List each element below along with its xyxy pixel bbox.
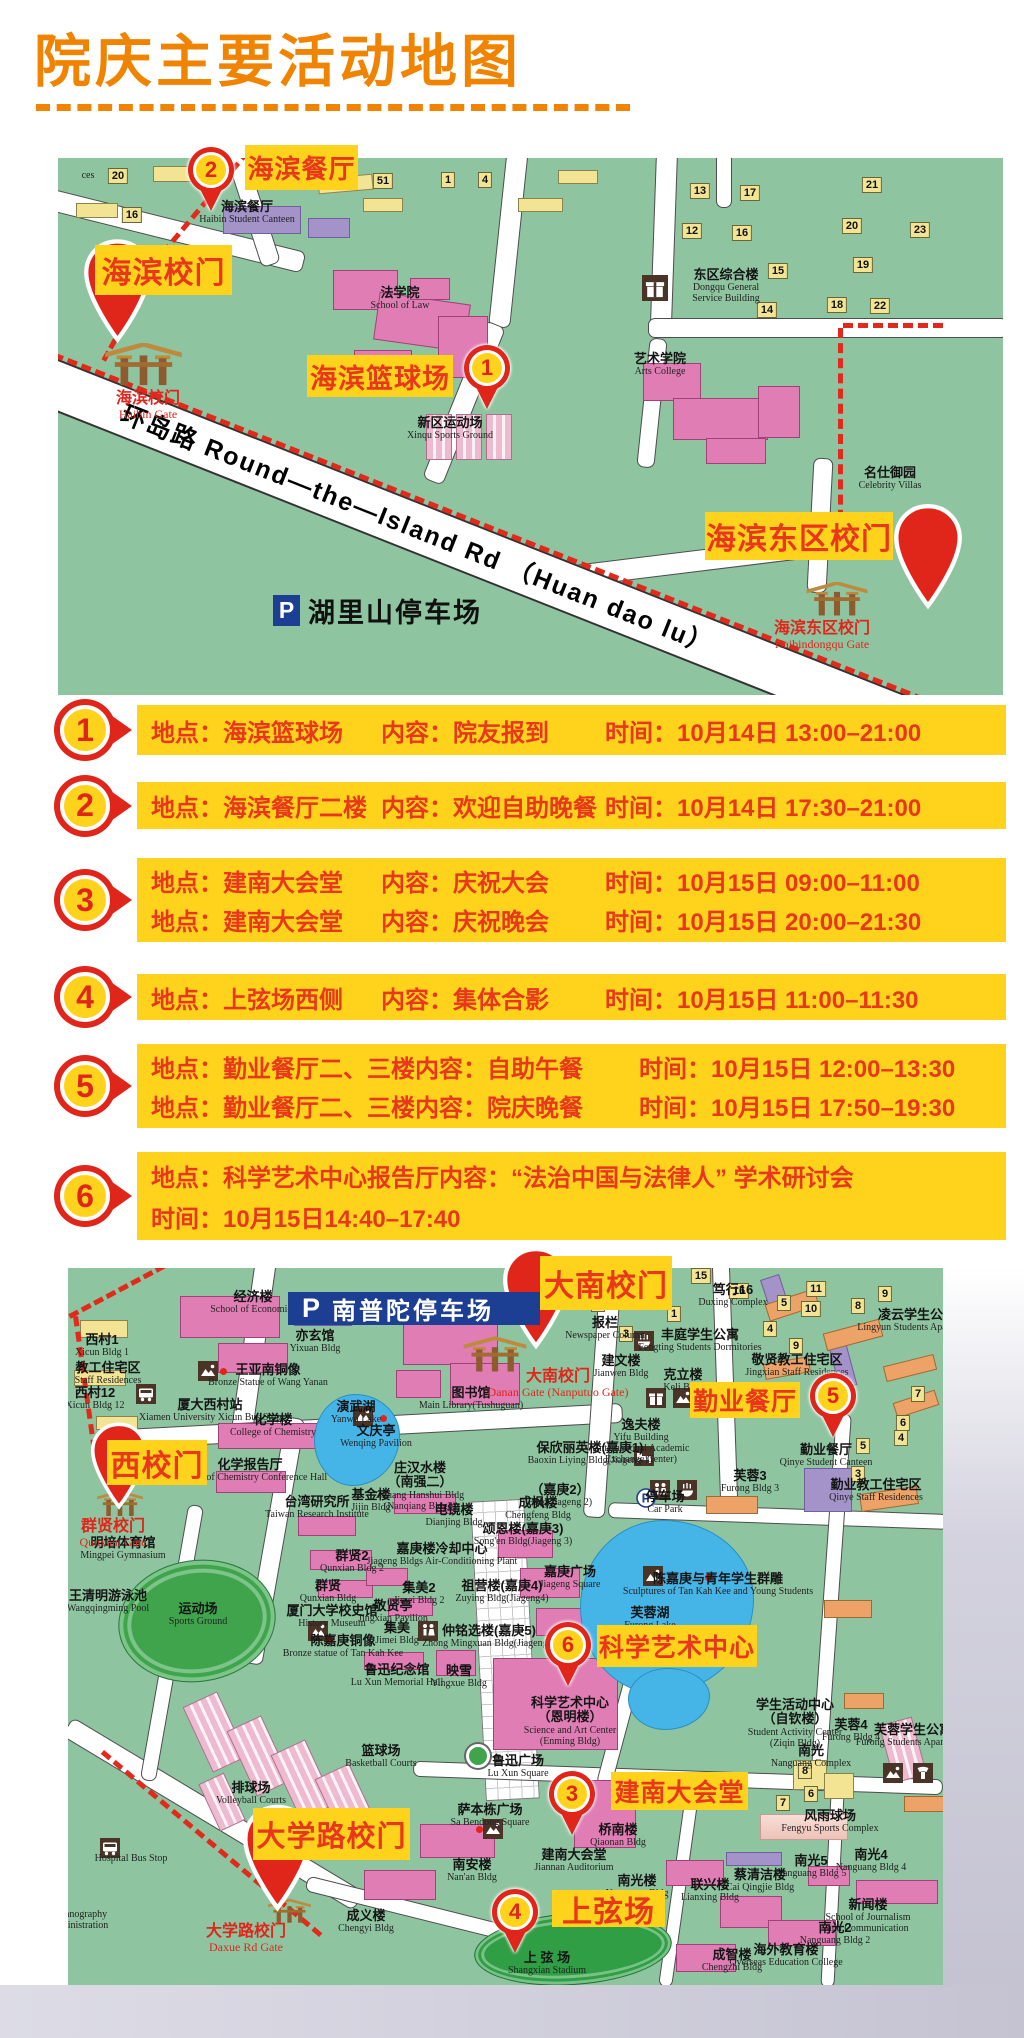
gate-name-en: Qunxian Gate xyxy=(80,1536,147,1549)
map-label: ces xyxy=(82,170,95,181)
building-number: 5 xyxy=(777,1295,791,1311)
map-label-zh: 上 弦 场 xyxy=(508,1951,586,1965)
marker-number: 5 xyxy=(60,1061,110,1111)
gate-name-zh: 海滨校门 xyxy=(116,390,180,408)
building-number: 19 xyxy=(853,257,873,273)
map-tag: 上弦场 xyxy=(552,1890,665,1927)
marker-tail xyxy=(820,1411,846,1437)
map-label: 桥南楼Qiaonan Bldg xyxy=(590,1823,646,1848)
marker-tail xyxy=(502,1927,528,1953)
map-label-en: Lu Xun Memorial Hall xyxy=(351,1677,443,1688)
event-content: 内容：院友报到 xyxy=(381,713,605,748)
map-tag: 科学艺术中心 xyxy=(597,1625,757,1667)
building-number: 10 xyxy=(801,1301,821,1317)
map-label: 艺术学院Arts College xyxy=(634,352,686,377)
event-place: 地点：科学艺术中心报告厅 xyxy=(151,1158,439,1193)
map-label-zh: 芙蓉3 xyxy=(721,1469,779,1483)
map-label-zh: 庄汉水楼 xyxy=(376,1461,464,1475)
map-marker-6: 6 xyxy=(545,1622,591,1686)
parking-label: P湖里山停车场 xyxy=(273,591,482,630)
map-label: 南光4Nanguang Bldg 4 xyxy=(836,1848,907,1873)
map-label-en: Qunxian Bldg 2 xyxy=(320,1563,384,1574)
gate-name-zh: 大学路校门 xyxy=(206,1923,286,1941)
parking-name: 湖里山停车场 xyxy=(308,591,482,630)
map-label-zh: 海外教育楼 xyxy=(729,1943,842,1957)
map-label-zh: 芙蓉湖 xyxy=(624,1606,675,1620)
map-label: 仲铭选楼(嘉庚5)Zhong Mingxuan Bldg(Jiageng5) xyxy=(422,1624,556,1649)
road xyxy=(650,158,679,338)
map-label: 运动场Sports Ground xyxy=(169,1602,228,1627)
building-number: 16 xyxy=(732,225,752,241)
map-label-en: Car Park xyxy=(645,1504,684,1515)
building-number: 14 xyxy=(757,302,777,318)
page-margin-bottom xyxy=(0,1985,1024,2038)
map-label-en: Yixuan Bldg xyxy=(290,1343,341,1354)
map-label-en: School of Economics xyxy=(210,1304,296,1315)
map-label-en: Shangxian Stadium xyxy=(508,1965,586,1976)
event-content: 内容：欢迎自助晚餐 xyxy=(381,788,605,823)
marker-ring: 2 xyxy=(54,775,116,837)
map-label: 科学艺术中心（恩明楼）Science and Art Center(Enming… xyxy=(524,1696,616,1747)
map-label-en: ces xyxy=(82,170,95,181)
map-label-en: Zhong Mingxuan Bldg(Jiageng5) xyxy=(422,1638,556,1649)
event-time: 时间：10月15日 11:00–11:30 xyxy=(605,980,919,1015)
map-label-en: Basketball Courts xyxy=(345,1758,416,1769)
map-label: 笃行16Duxing Complex xyxy=(698,1283,767,1308)
event-time: 时间：10月15日14:40–17:40 xyxy=(151,1199,461,1234)
building-number: 1 xyxy=(441,172,455,188)
gate-name-label: 大学路校门Daxue Rd Gate xyxy=(206,1923,286,1954)
marker-ring: 6 xyxy=(54,1165,116,1227)
building-number: 4 xyxy=(763,1321,777,1337)
map-label: 群贤2Qunxian Bldg 2 xyxy=(320,1549,384,1574)
map-label-zh: 鲁迅纪念馆 xyxy=(351,1663,443,1677)
building-orange xyxy=(904,1796,943,1812)
marker-number: 2 xyxy=(193,152,229,188)
gate-name-zh: 群贤校门 xyxy=(80,1518,147,1536)
event-bar-2: 地点：海滨餐厅二楼内容：欢迎自助晚餐时间：10月14日 17:30–21:00 xyxy=(137,782,1006,829)
map-label-zh: 勤业教工住宅区 xyxy=(829,1478,923,1492)
map-label-en: Bronze Statue of Wang Yanan xyxy=(208,1377,328,1388)
map-label-zh: 学生活动中心 xyxy=(748,1698,842,1712)
map-label: 亦玄馆Yixuan Bldg xyxy=(290,1329,341,1354)
event-row: 地点：勤业餐厅二、三楼内容：院庆晚餐时间：10月15日 17:50–19:30 xyxy=(137,1088,1006,1123)
map-label-zh: 萨本栋广场 xyxy=(451,1803,530,1817)
gate-name-en: Danan Gate (Nanputuo Gate) xyxy=(488,1386,629,1399)
marker-number: 4 xyxy=(497,1894,533,1930)
map-tag: 建南大会堂 xyxy=(611,1772,748,1810)
marker-ring: 3 xyxy=(54,869,116,931)
building-yellow xyxy=(518,198,563,212)
marker-ring: 6 xyxy=(545,1622,591,1668)
building-number: 17 xyxy=(740,185,760,201)
event-row: 地点：建南大会堂内容：庆祝晚会时间：10月15日 20:00–21:30 xyxy=(137,902,1006,937)
gift-icon xyxy=(642,275,668,301)
map-label-zh: 报栏 xyxy=(565,1316,645,1330)
event-marker-1: 1 xyxy=(54,699,186,761)
map-label: 法学院School of Law xyxy=(371,286,430,311)
map-label-zh: 仲铭选楼(嘉庚5) xyxy=(422,1624,556,1638)
map-label-zh: 嘉庚广场 xyxy=(540,1565,601,1579)
map-label-en: Oceanography xyxy=(68,1909,108,1920)
map-label-en: Fengting Students Dormitories xyxy=(638,1342,761,1353)
parking-p-icon: P xyxy=(273,595,300,626)
event-row: 地点：海滨餐厅二楼内容：欢迎自助晚餐时间：10月14日 17:30–21:00 xyxy=(137,788,1006,823)
building-orange xyxy=(844,1693,884,1709)
event-marker-4: 4 xyxy=(54,966,186,1028)
event-bar-4: 地点：上弦场西侧内容：集体合影时间：10月15日 11:00–11:30 xyxy=(137,974,1006,1020)
marker-number: 3 xyxy=(60,875,110,925)
event-bar-3: 地点：建南大会堂内容：庆祝大会时间：10月15日 09:00–11:00地点：建… xyxy=(137,858,1006,942)
building-number: 18 xyxy=(827,297,847,313)
map-label-en: Dongqu General xyxy=(692,282,760,293)
building-orange xyxy=(824,1600,872,1618)
event-content: 内容：集体合影 xyxy=(381,980,605,1015)
map-label-en: Nan'an Bldg xyxy=(447,1872,497,1883)
map-label: 海外教育楼Overseas Education College xyxy=(729,1943,842,1968)
marker-ring: 3 xyxy=(549,1771,595,1817)
map-label-en: Duxing Complex xyxy=(698,1297,767,1308)
building-number: 6 xyxy=(896,1415,910,1431)
map-label: 西村1Xicun Bldg 1 xyxy=(75,1333,129,1358)
map-label-zh: 电镜楼 xyxy=(426,1503,483,1517)
map-label: 鲁迅广场Lu Xun Square xyxy=(487,1754,548,1779)
map-label: 成义楼Chengyi Bldg xyxy=(338,1909,394,1934)
map-label: 成枫楼Chengfeng Bldg xyxy=(505,1496,571,1521)
map-label: 西村12Xicun Bldg 12 xyxy=(68,1386,124,1411)
event-time: 时间：10月15日 20:00–21:30 xyxy=(605,902,921,937)
map-label-zh: 鲁迅广场 xyxy=(487,1754,548,1768)
gate-name-en: Haibin Gate xyxy=(116,408,180,421)
map-label: 东区综合楼Dongqu GeneralService Building xyxy=(692,268,760,304)
building-number: 23 xyxy=(910,222,930,238)
map-label: 报栏Newspaper Column xyxy=(565,1316,645,1341)
map-label: 芙蓉3Furong Bldg 3 xyxy=(721,1469,779,1494)
map-label-en: Main Library(Tushuguan) xyxy=(419,1400,523,1411)
map-label: 基金楼Jijin Bldg xyxy=(351,1488,390,1513)
page-margin-right xyxy=(943,1268,1024,2038)
map-label-en: Hospital Bus Stop xyxy=(95,1853,168,1864)
map-label: 嘉庚广场Jiageng Square xyxy=(540,1565,601,1590)
map-tag: 海滨餐厅 xyxy=(245,145,358,190)
road xyxy=(648,318,1003,338)
event-marker-6: 6 xyxy=(54,1165,186,1227)
gate-name-en: Haibindongqu Gate xyxy=(774,638,870,651)
marker-tail xyxy=(559,1809,585,1835)
map-label-en: Administration xyxy=(68,1920,108,1931)
map-label-zh: 丰庭学生公寓 xyxy=(638,1328,761,1342)
map-label-zh: 经济楼 xyxy=(210,1290,296,1304)
map-label-zh: 映雪 xyxy=(431,1664,487,1678)
map-label: 陈嘉庚与青年学生群雕Sculptures of Tan Kah Kee and … xyxy=(623,1572,813,1597)
map-label: 演武湖Yanwu Lake xyxy=(331,1400,381,1425)
map-label-en: Zuying Bldg(Jiageng4) xyxy=(455,1593,548,1604)
event-bar-1: 地点：海滨篮球场内容：院友报到时间：10月14日 13:00–21:00 xyxy=(137,705,1006,755)
building-number: 12 xyxy=(682,223,702,239)
marker-ring: 5 xyxy=(54,1055,116,1117)
building-purple xyxy=(308,218,350,238)
map-label-zh: 勤业餐厅 xyxy=(780,1443,873,1457)
map-label-en: Wenqing Pavilion xyxy=(340,1438,412,1449)
event-row: 地点：上弦场西侧内容：集体合影时间：10月15日 11:00–11:30 xyxy=(137,980,1006,1015)
marker-ring: 4 xyxy=(54,966,116,1028)
map-label-en: Haibin Student Canteen xyxy=(199,214,295,225)
map-label: 祖营楼(嘉庚4)Zuying Bldg(Jiageng4) xyxy=(455,1579,548,1604)
event-row: 地点：科学艺术中心报告厅内容：“法治中国与法律人” 学术研讨会 xyxy=(137,1158,1006,1193)
building-number: 20 xyxy=(108,168,128,184)
map-label-en: (Enming Bldg) xyxy=(524,1736,616,1747)
marker-number: 5 xyxy=(815,1378,851,1414)
marker-number: 3 xyxy=(554,1776,590,1812)
map-label: 芙蓉学生公寓Furong Students Apartments xyxy=(856,1723,943,1748)
anniversary-map-poster: 院庆主要活动地图 环岛路 Round—the—Island Rd （Huan d… xyxy=(0,0,1024,2038)
map-label-en: College of Chemistry xyxy=(230,1427,316,1438)
marker-number: 4 xyxy=(60,972,110,1022)
map-label-en: Furong Bldg 3 xyxy=(721,1483,779,1494)
map-label-en: Arts College xyxy=(634,366,686,377)
map-label-zh: （恩明楼） xyxy=(524,1710,616,1724)
event-row: 时间：10月15日14:40–17:40 xyxy=(137,1199,1006,1234)
map-label-zh: 演武湖 xyxy=(331,1400,381,1414)
building-yellow xyxy=(824,1773,854,1799)
map-label-zh: 集美2 xyxy=(393,1581,444,1595)
map-label-en: School of Law xyxy=(371,300,430,311)
map-label: 风雨球场Fengyu Sports Complex xyxy=(781,1809,878,1834)
phone-icon xyxy=(913,1763,933,1783)
event-time: 时间：10月14日 17:30–21:00 xyxy=(605,788,921,823)
map-label-en: Jimei Bldg 2 xyxy=(393,1595,444,1606)
title-underline xyxy=(36,104,630,111)
map-label-en: Overseas Education College xyxy=(729,1957,842,1968)
map-label-en: Yingxue Bldg xyxy=(431,1678,487,1689)
map-label-zh: 化学楼 xyxy=(230,1413,316,1427)
building-yellow xyxy=(558,170,598,184)
map-marker-2: 2 xyxy=(188,147,234,211)
marker-ring: 1 xyxy=(464,345,510,391)
event-time: 时间：10月14日 13:00–21:00 xyxy=(605,713,921,748)
gate-name-zh: 大南校门 xyxy=(488,1368,629,1386)
map-label-zh: 成义楼 xyxy=(338,1909,394,1923)
map-label-zh: 西村12 xyxy=(68,1386,124,1400)
event-time: 时间：10月15日 09:00–11:00 xyxy=(605,863,920,898)
map-label-zh: 排球场 xyxy=(216,1781,286,1795)
building-pink xyxy=(673,398,768,440)
map-marker-5: 5 xyxy=(810,1373,856,1437)
map-label-en: Service Building xyxy=(692,293,760,304)
map-tag: 勤业餐厅 xyxy=(690,1382,800,1418)
boundary-dashed-line xyxy=(68,1268,166,1319)
event-time: 时间：10月15日 12:00–13:30 xyxy=(639,1049,955,1084)
map-label: 逸夫楼Yifu Building(International AcademicE… xyxy=(593,1418,690,1465)
parking-banner: P南普陀停车场 xyxy=(288,1292,540,1325)
map-label-en: Furong Students Apartments xyxy=(856,1737,943,1748)
map-label: 王亚南铜像Bronze Statue of Wang Yanan xyxy=(208,1363,328,1388)
marker-ring: 2 xyxy=(188,147,234,193)
map-label: OceanographyAdministration xyxy=(68,1909,108,1931)
map-label-zh: 陈嘉庚与青年学生群雕 xyxy=(623,1572,813,1586)
marker-tail xyxy=(474,383,500,409)
marker-ring: 4 xyxy=(492,1889,538,1935)
map-label-zh: 科学艺术中心 xyxy=(524,1696,616,1710)
marker-number: 6 xyxy=(60,1171,110,1221)
map-label-zh: 颂恩楼(嘉庚3) xyxy=(474,1522,572,1536)
map-label-en: Exchange Center) xyxy=(593,1454,690,1465)
building-orange xyxy=(883,1354,937,1382)
map-marker-3: 3 xyxy=(549,1771,595,1835)
gate-pin xyxy=(893,493,963,620)
building-number: 15 xyxy=(768,263,788,279)
map-label-zh: 教工住宅区 xyxy=(75,1361,142,1375)
map-marker-1: 1 xyxy=(464,345,510,409)
map-label: 凌云学生公寓Lingyun Students Apartments xyxy=(857,1308,943,1333)
event-place: 地点：勤业餐厅二、三楼 xyxy=(151,1088,415,1123)
map-label: 萨本栋广场Sa Bendong Square xyxy=(451,1803,530,1828)
map-label-zh: 基金楼 xyxy=(351,1488,390,1502)
map-label: 王清明游泳池Wangqingming Pool xyxy=(68,1589,149,1614)
map-label-en: Nanguang Bldg 4 xyxy=(836,1862,907,1873)
gate-icon xyxy=(801,582,873,617)
map-label-zh: 桥南楼 xyxy=(590,1823,646,1837)
page-title: 院庆主要活动地图 xyxy=(34,16,522,98)
marker-tail xyxy=(555,1660,581,1686)
map-label-en: Nanguang Complex xyxy=(771,1758,851,1769)
gate-name-en: Daxue Rd Gate xyxy=(206,1941,286,1954)
marker-ring: 5 xyxy=(810,1373,856,1419)
map-label-en: Fengyu Sports Complex xyxy=(781,1823,878,1834)
map-label-en: Yifu Building xyxy=(593,1432,690,1443)
map-label-zh: 新闻楼 xyxy=(826,1898,911,1912)
map-label: 名仕御园Celebrity Villas xyxy=(859,466,922,491)
event-row: 地点：海滨篮球场内容：院友报到时间：10月14日 13:00–21:00 xyxy=(137,713,1006,748)
map-label-zh: 亦玄馆 xyxy=(290,1329,341,1343)
building-purple xyxy=(726,1852,782,1866)
map-label-en: Science and Art Center xyxy=(524,1725,616,1736)
map-label-zh: 运动场 xyxy=(169,1602,228,1616)
map-label-en: Xinqu Sports Ground xyxy=(407,430,493,441)
road xyxy=(488,158,530,329)
building-number: 11 xyxy=(806,1281,826,1297)
map-label-zh: 嘉庚楼冷却中心 xyxy=(367,1542,518,1556)
map-label-en: Celebrity Villas xyxy=(859,480,922,491)
map-label-en: Jijin Bldg xyxy=(351,1502,390,1513)
event-content: 内容：庆祝晚会 xyxy=(381,902,605,937)
roundabout xyxy=(466,1744,490,1768)
map-label-zh: 名仕御园 xyxy=(859,466,922,480)
building-number: 4 xyxy=(894,1430,908,1446)
map-label-zh: 群贤2 xyxy=(320,1549,384,1563)
marker-number: 1 xyxy=(469,350,505,386)
building-number: 21 xyxy=(862,177,882,193)
road xyxy=(716,158,732,208)
map-label-en: Mingpei Gymnasium xyxy=(80,1550,165,1561)
map-label: 上 弦 场Shangxian Stadium xyxy=(508,1951,586,1976)
map-label: 陈嘉庚铜像Bronze statue of Tan Kah Kee xyxy=(283,1634,403,1659)
event-bar-5: 地点：勤业餐厅二、三楼内容：自助午餐时间：10月15日 12:00–13:30地… xyxy=(137,1044,1006,1128)
map-label-zh: 芙蓉学生公寓 xyxy=(856,1723,943,1737)
building-pink xyxy=(758,386,800,438)
map-label-en: Xicun Bldg 12 xyxy=(68,1400,124,1411)
marker-tail xyxy=(198,185,224,211)
map-label-zh: 东区综合楼 xyxy=(692,268,760,282)
map-label-zh: 祖营楼(嘉庚4) xyxy=(455,1579,548,1593)
parking-p-icon: P xyxy=(302,1293,320,1324)
map-label-zh: 王亚南铜像 xyxy=(208,1363,328,1377)
map-label-en: Lu Xun Square xyxy=(487,1768,548,1779)
map-label-zh: 群贤 xyxy=(300,1579,356,1593)
building-number: 7 xyxy=(911,1386,925,1402)
building-number: 15 xyxy=(691,1268,711,1284)
map-label-zh: 成枫楼 xyxy=(505,1496,571,1510)
map-label: 集美2Jimei Bldg 2 xyxy=(393,1581,444,1606)
photo-icon xyxy=(883,1763,903,1783)
map-label-en: Jiageng Square xyxy=(540,1579,601,1590)
lake xyxy=(628,1668,710,1730)
building-yellow xyxy=(76,203,118,218)
map-label: 鲁迅纪念馆Lu Xun Memorial Hall xyxy=(351,1663,443,1688)
map-label-zh: 风雨球场 xyxy=(781,1809,878,1823)
gate-name-label: 海滨东区校门Haibindongqu Gate xyxy=(774,620,870,651)
building-number: 22 xyxy=(870,298,890,314)
map-tag: 海滨东区校门 xyxy=(705,512,893,560)
map-label-en: Xicun Bldg 1 xyxy=(75,1347,129,1358)
building-number: 9 xyxy=(878,1286,892,1302)
map-label-zh: 西村1 xyxy=(75,1333,129,1347)
map-label-en: Chengyi Bldg xyxy=(338,1923,394,1934)
map-label-en: Lianxing Bldg xyxy=(681,1892,739,1903)
map-label-en: Sculptures of Tan Kah Kee and Young Stud… xyxy=(623,1586,813,1597)
map-label: 群贤Qunxian Bldg xyxy=(300,1579,356,1604)
building-pink xyxy=(364,1870,436,1900)
building-yellow xyxy=(363,198,403,212)
map-label-zh: 笃行16 xyxy=(698,1283,767,1297)
map-label: 嘉庚楼冷却中心Jiageng Bldgs Air-Conditioning Pl… xyxy=(367,1542,518,1567)
event-row: 地点：建南大会堂内容：庆祝大会时间：10月15日 09:00–11:00 xyxy=(137,863,1006,898)
parking-name: 南普陀停车场 xyxy=(332,1291,494,1326)
event-marker-2: 2 xyxy=(54,775,186,837)
building-number: 13 xyxy=(690,183,710,199)
map-tag: 海滨篮球场 xyxy=(307,355,453,397)
map-label: 经济楼School of Economics xyxy=(210,1290,296,1315)
map-label-zh: 法学院 xyxy=(371,286,430,300)
map-label-zh: 陈嘉庚铜像 xyxy=(283,1634,403,1648)
map-label-zh: 南安楼 xyxy=(447,1858,497,1872)
map-label-en: Sports Ground xyxy=(169,1616,228,1627)
event-content: 内容：自助午餐 xyxy=(415,1049,639,1084)
boundary-dashed-line xyxy=(843,323,943,328)
map-label-zh: 新区运动场 xyxy=(407,416,493,430)
building-number: 4 xyxy=(478,172,492,188)
building-number: 6 xyxy=(804,1786,818,1802)
building-number: 20 xyxy=(842,218,862,234)
map-label-zh: 敬贤教工住宅区 xyxy=(745,1353,848,1367)
map-tag: 海滨校门 xyxy=(95,245,232,295)
event-row: 地点：勤业餐厅二、三楼内容：自助午餐时间：10月15日 12:00–13:30 xyxy=(137,1049,1006,1084)
map-label-zh: 逸夫楼 xyxy=(593,1418,690,1432)
map-label-zh: 停车场 xyxy=(645,1490,684,1504)
map-label: 建南大会堂Jiannan Auditorium xyxy=(534,1848,613,1873)
gate-name-label: 群贤校门Qunxian Gate xyxy=(80,1518,147,1549)
event-marker-5: 5 xyxy=(54,1055,186,1117)
building-number: 16 xyxy=(122,207,142,223)
map-label: 勤业餐厅Qinye Student Canteen xyxy=(780,1443,873,1468)
map-label: 停车场Car Park xyxy=(645,1490,684,1515)
building-number: 51 xyxy=(373,173,393,189)
marker-ring: 1 xyxy=(54,699,116,761)
map-marker-4: 4 xyxy=(492,1889,538,1953)
map-label: 南光Nanguang Complex xyxy=(771,1744,851,1769)
map-label-en: Jiageng Bldgs Air-Conditioning Plant xyxy=(367,1556,518,1567)
map-tag: 大南校门 xyxy=(540,1256,672,1310)
